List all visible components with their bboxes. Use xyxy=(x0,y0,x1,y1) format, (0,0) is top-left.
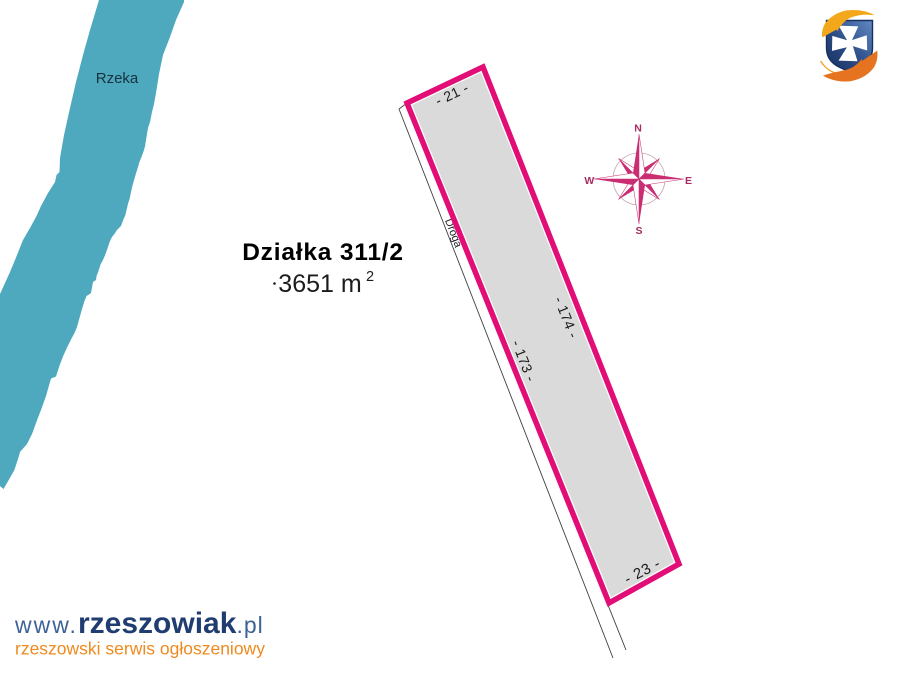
svg-text:S: S xyxy=(635,225,642,237)
svg-text:Działka 311/2: Działka 311/2 xyxy=(242,239,404,266)
svg-text:rzeszowiak: rzeszowiak xyxy=(78,607,237,640)
svg-text:.pl: .pl xyxy=(237,612,264,638)
svg-text:N: N xyxy=(634,123,642,135)
svg-text:rzeszowski serwis ogłoszeniowy: rzeszowski serwis ogłoszeniowy xyxy=(15,639,265,659)
svg-text:2: 2 xyxy=(366,269,374,285)
svg-text:www.: www. xyxy=(14,612,78,638)
svg-text:Rzeka: Rzeka xyxy=(96,70,139,87)
svg-text:3651 m: 3651 m xyxy=(278,270,361,298)
svg-text:W: W xyxy=(584,175,594,187)
svg-text:E: E xyxy=(685,175,692,187)
